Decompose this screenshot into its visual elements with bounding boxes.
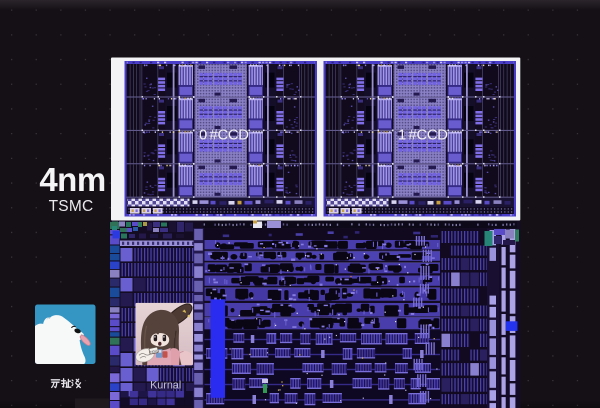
svg-text:Kurnal: Kurnal (150, 380, 181, 392)
svg-text:4nm: 4nm (39, 161, 105, 198)
svg-text:TSMC: TSMC (49, 198, 94, 215)
svg-text:0 #CCD: 0 #CCD (199, 128, 249, 144)
svg-text:1 #CCD: 1 #CCD (398, 128, 448, 144)
